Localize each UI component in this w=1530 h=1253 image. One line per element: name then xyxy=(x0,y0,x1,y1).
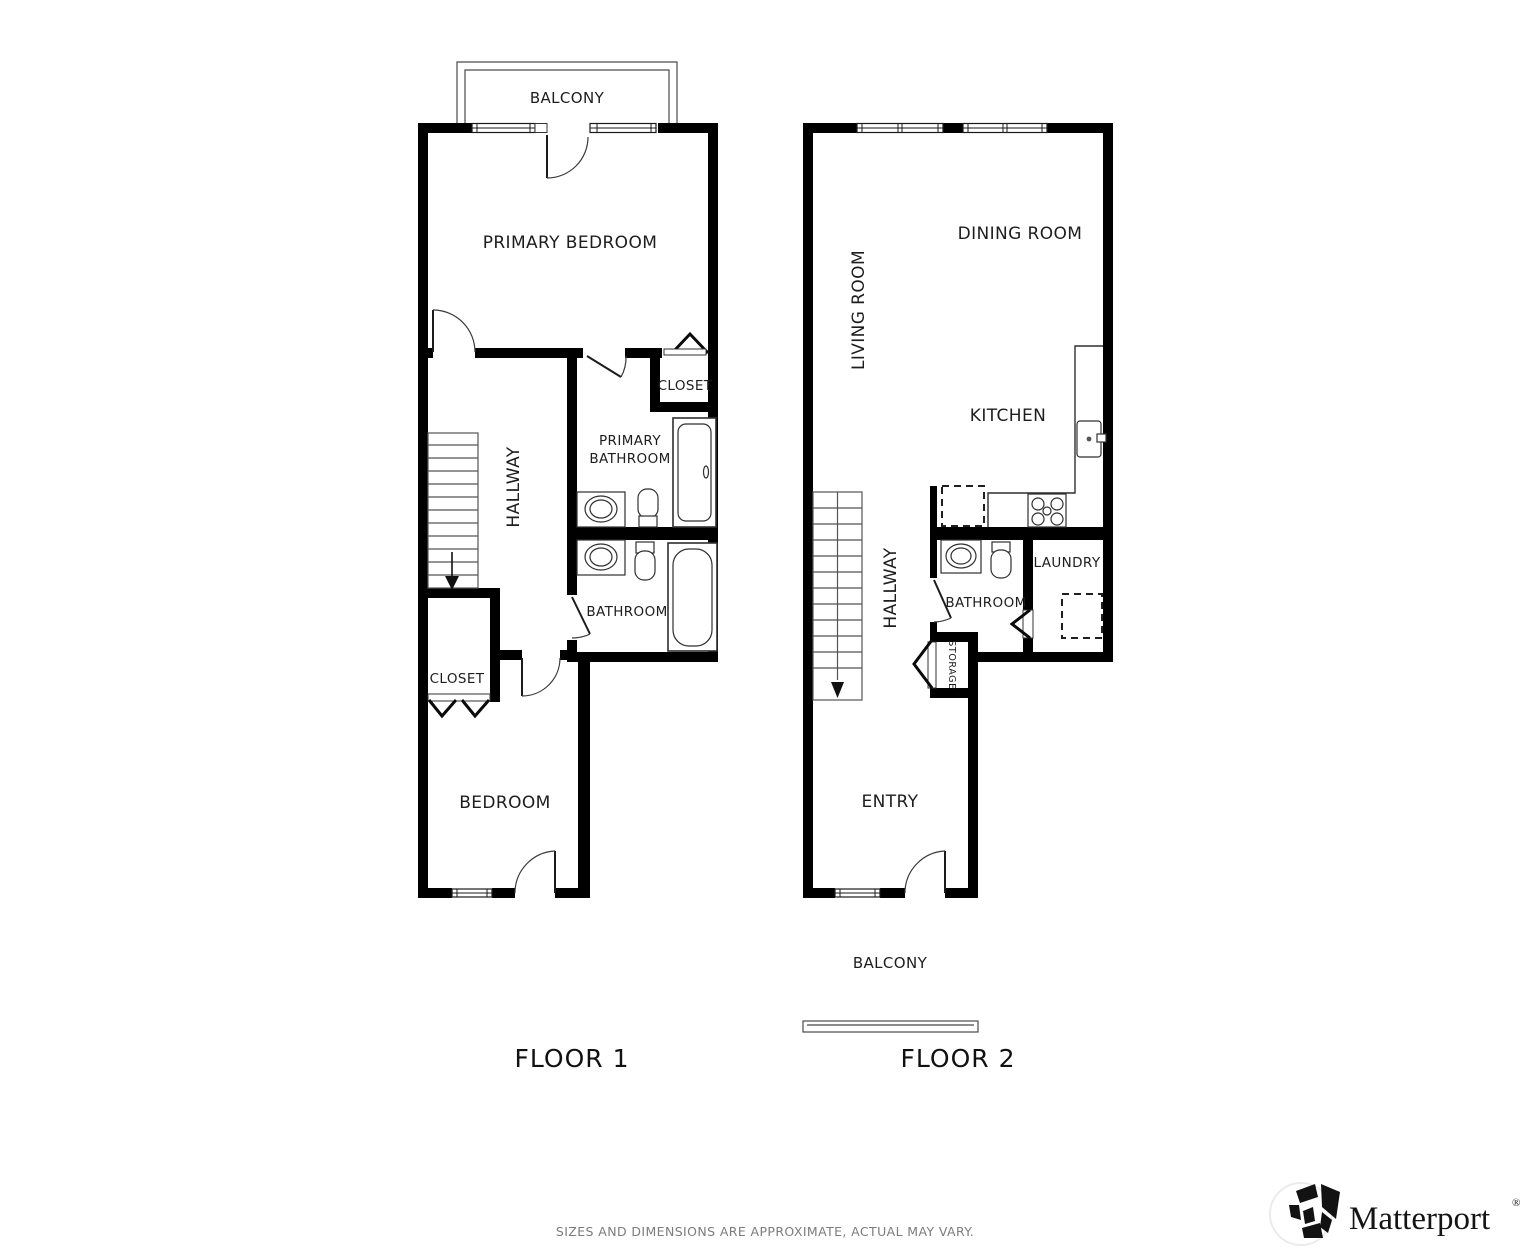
room-label-bathroom-f1: BATHROOM xyxy=(586,604,667,620)
closet-chevron-icon xyxy=(664,334,708,355)
stairs-down-arrow-icon xyxy=(445,552,459,590)
room-label-balcony-f2: BALCONY xyxy=(853,954,928,972)
room-label-bedroom: BEDROOM xyxy=(459,793,551,813)
room-label-closet-top: CLOSET xyxy=(658,378,713,394)
toilet-icon xyxy=(638,489,658,527)
floorplan-page: BALCONY PRIMARY BEDROOM CLOSET PRIMARY B… xyxy=(0,0,1530,1253)
room-label-bathroom-f2: BATHROOM xyxy=(945,595,1026,611)
toilet-icon xyxy=(991,542,1011,578)
floor1-plan: BALCONY PRIMARY BEDROOM CLOSET PRIMARY B… xyxy=(418,62,718,1073)
toilet-icon xyxy=(635,542,655,580)
bedroom-hall-door-icon xyxy=(522,658,560,696)
door-jamb xyxy=(535,124,547,133)
stove-icon xyxy=(1028,494,1066,527)
room-label-hallway-f2: HALLWAY xyxy=(881,547,901,628)
floor2-kitchen-fixtures xyxy=(942,346,1106,527)
matterport-wordmark: Matterport xyxy=(1349,1201,1490,1237)
room-label-kitchen: KITCHEN xyxy=(970,406,1046,426)
sink-icon xyxy=(577,540,625,575)
floor2-plan: LIVING ROOM DINING ROOM KITCHEN HALLWAY … xyxy=(803,123,1113,1073)
bedroom-exterior-door-icon xyxy=(515,851,555,893)
storage-door-chevron-icon xyxy=(914,640,936,688)
room-label-laundry: LAUNDRY xyxy=(1033,555,1100,571)
floor2-stairs-icon xyxy=(813,492,862,700)
floor1-title: FLOOR 1 xyxy=(515,1044,630,1073)
room-label-primary-bedroom: PRIMARY BEDROOM xyxy=(483,233,658,253)
window-icon xyxy=(472,124,535,133)
balcony-door-icon xyxy=(547,135,588,178)
window-icon xyxy=(963,124,1047,133)
window-icon xyxy=(835,889,880,897)
washer-dryer-dashed-icon xyxy=(1062,594,1102,638)
room-label-storage: STORAGE xyxy=(946,640,957,689)
room-label-primary-bathroom-line2: BATHROOM xyxy=(589,451,670,467)
bathtub-icon xyxy=(668,543,717,651)
disclaimer-text: SIZES AND DIMENSIONS ARE APPROXIMATE, AC… xyxy=(556,1224,974,1239)
stairs-down-arrow-icon xyxy=(831,682,844,698)
primary-bedroom-door-icon xyxy=(433,310,475,352)
room-label-balcony-f1: BALCONY xyxy=(530,89,605,107)
window-icon xyxy=(857,124,943,133)
room-label-hallway-f1: HALLWAY xyxy=(504,446,524,527)
laundry-door-chevron-icon xyxy=(1012,610,1033,638)
sink-icon xyxy=(941,540,981,573)
matterport-logo: Matterport ® xyxy=(1270,1183,1520,1245)
shower-icon xyxy=(673,418,716,527)
floor2-title: FLOOR 2 xyxy=(901,1044,1016,1073)
floor1-bathroom-fixtures xyxy=(577,540,717,651)
room-label-primary-bathroom-line1: PRIMARY xyxy=(599,433,661,449)
entry-door-icon xyxy=(905,851,945,893)
room-label-entry: ENTRY xyxy=(862,792,919,812)
room-label-dining-room: DINING ROOM xyxy=(958,224,1083,244)
floor1-stairs-icon xyxy=(428,433,478,590)
room-label-closet-bottom: CLOSET xyxy=(430,671,485,687)
refrigerator-icon xyxy=(1077,421,1106,457)
room-label-living-room: LIVING ROOM xyxy=(849,250,869,370)
window-icon xyxy=(590,124,656,133)
registered-trademark-symbol: ® xyxy=(1512,1197,1520,1209)
sink-icon xyxy=(577,492,625,527)
floor2-balcony-edge xyxy=(803,1021,978,1032)
window-icon xyxy=(452,889,492,897)
closet-bifold-chevrons-icon xyxy=(428,694,490,716)
primary-bathroom-door-icon xyxy=(587,356,626,377)
dishwasher-dashed-icon xyxy=(942,486,984,526)
matterport-logo-icon xyxy=(1289,1184,1340,1238)
floorplan-svg: BALCONY PRIMARY BEDROOM CLOSET PRIMARY B… xyxy=(0,0,1530,1253)
